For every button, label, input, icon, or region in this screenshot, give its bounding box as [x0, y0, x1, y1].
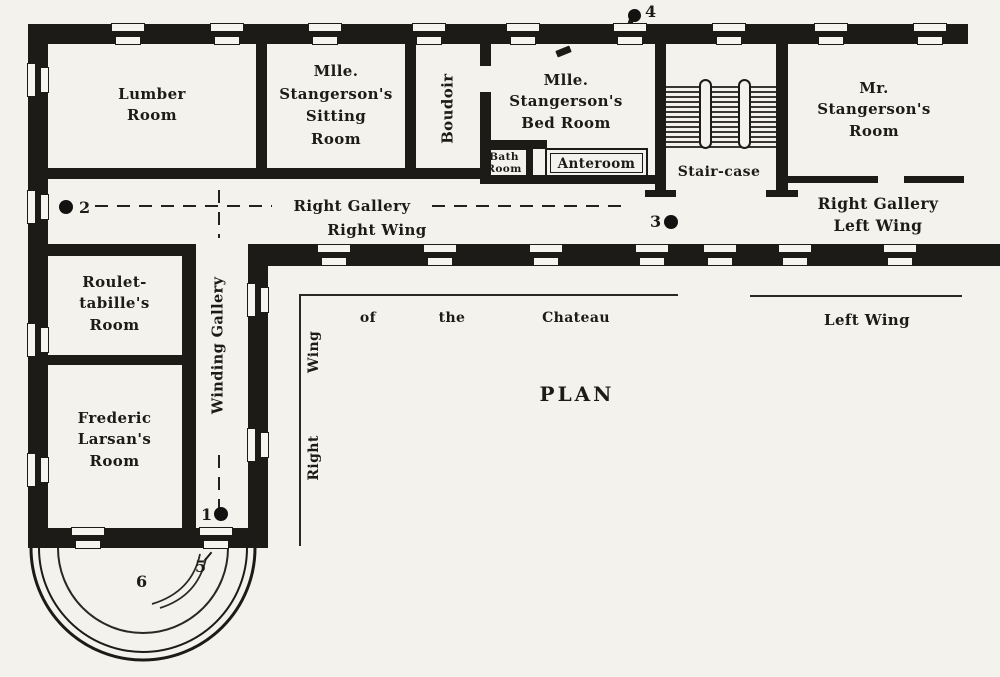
window-pane	[427, 257, 453, 266]
caption-left-wing: Left Wing	[807, 310, 927, 331]
staircase-tread	[666, 136, 776, 138]
window-pane	[887, 257, 913, 266]
window-pane	[917, 36, 943, 45]
room-label-staircase: Stair-case	[664, 163, 774, 183]
window-pane	[533, 257, 559, 266]
window-pane	[308, 23, 342, 32]
room-label-boudoir: Boudoir	[437, 49, 458, 169]
window-pane	[613, 23, 647, 32]
window-pane	[703, 244, 737, 253]
window-pane	[639, 257, 665, 266]
wall-leftrooms-right	[182, 244, 196, 528]
caption-chateau: Chateau	[526, 309, 626, 329]
window-pane	[913, 23, 947, 32]
staircase-tread	[666, 86, 776, 88]
window	[111, 23, 145, 45]
staircase-tread	[666, 101, 776, 103]
room-label-anteroom: Anteroom	[549, 155, 644, 174]
window-pane	[510, 36, 536, 45]
staircase-tread	[666, 131, 776, 133]
window-pane	[247, 428, 256, 462]
window-pane	[712, 23, 746, 32]
room-label-bath: Bath Room	[482, 151, 526, 175]
window	[506, 23, 540, 45]
window	[613, 23, 647, 45]
room-label-bedroom: Mlle. Stangerson's Bed Room	[486, 70, 646, 134]
window-pane	[27, 453, 36, 487]
window-pane	[778, 244, 812, 253]
wall-mrs-bottom-left	[783, 176, 878, 183]
window-pane	[416, 36, 442, 45]
window-pane	[27, 63, 36, 97]
caption-right-vertical: Right	[305, 423, 325, 493]
staircase-tread	[666, 146, 776, 148]
room-label-mr-stangerson: Mr. Stangerson's Room	[784, 78, 964, 142]
window	[635, 244, 669, 266]
caption-the: the	[430, 309, 474, 329]
room-label-lumber: Lumber Room	[62, 84, 242, 127]
marker-3-dot	[664, 215, 678, 229]
window	[71, 527, 105, 549]
room-label-larsan: Frederic Larsan's Room	[52, 408, 177, 472]
window-pane	[75, 540, 101, 549]
window	[913, 23, 947, 45]
window-pane	[214, 36, 240, 45]
window-pane	[782, 257, 808, 266]
staircase-tread	[666, 116, 776, 118]
window-pane	[260, 287, 269, 313]
staircase-rail-left	[699, 79, 712, 149]
marker-3: 3	[650, 212, 661, 231]
marker-4-dot	[628, 9, 641, 22]
marker-1: 1	[201, 505, 212, 524]
marker-2-dot	[59, 200, 73, 214]
window	[247, 283, 269, 317]
window-pane	[412, 23, 446, 32]
gallery-label-right-wing: Right Wing	[307, 220, 447, 241]
caption-of: of	[348, 309, 388, 329]
marker-1-dot	[214, 507, 228, 521]
window-pane	[321, 257, 347, 266]
window	[412, 23, 446, 45]
window	[529, 244, 563, 266]
right-gallery-dash-left	[95, 205, 275, 207]
window-pane	[210, 23, 244, 32]
window	[210, 23, 244, 45]
staircase-tread	[666, 121, 776, 123]
wall-roulettabille-larsan	[48, 355, 190, 365]
staircase-tread	[666, 96, 776, 98]
marker-4: 4	[645, 2, 656, 21]
staircase-tread	[666, 126, 776, 128]
window-pane	[423, 244, 457, 253]
window-pane	[883, 244, 917, 253]
window-pane	[707, 257, 733, 266]
window-pane	[312, 36, 338, 45]
window	[317, 244, 351, 266]
room-label-sitting: Mlle. Stangerson's Sitting Room	[266, 60, 406, 150]
marker-6: 6	[136, 572, 147, 591]
window-pane	[199, 527, 233, 536]
window	[199, 527, 233, 549]
window-pane	[818, 36, 844, 45]
window	[247, 428, 269, 462]
window-pane	[40, 327, 49, 353]
window-pane	[40, 194, 49, 220]
window	[27, 323, 49, 357]
window	[27, 453, 49, 487]
staircase-tread	[666, 111, 776, 113]
window-pane	[40, 457, 49, 483]
wall-rooms-bottom	[48, 168, 480, 179]
window-pane	[814, 23, 848, 32]
wall-mrs-bottom-right	[904, 176, 964, 183]
window	[27, 63, 49, 97]
courtyard-line-top-left	[299, 294, 678, 296]
window-pane	[260, 432, 269, 458]
window-pane	[71, 527, 105, 536]
courtyard-line-vertical	[299, 294, 301, 546]
window-pane	[27, 323, 36, 357]
room-label-roulettabille: Roulet- tabille's Room	[52, 272, 177, 336]
floor-plan-diagram: Lumber Room Mlle. Stangerson's Sitting R…	[0, 0, 1000, 677]
caption-wing-vertical: Wing	[305, 320, 325, 384]
wall-bed-staircase-foot	[645, 190, 676, 197]
window-pane	[716, 36, 742, 45]
wall-roulettabille-top	[48, 244, 196, 256]
staircase-rail-right	[738, 79, 751, 149]
window	[27, 190, 49, 224]
staircase-tread	[666, 106, 776, 108]
window	[703, 244, 737, 266]
courtyard-line-top-right	[750, 295, 962, 297]
window-pane	[635, 244, 669, 253]
window	[778, 244, 812, 266]
tower-arcs	[20, 540, 270, 675]
gallery-label-right-gallery: Right Gallery	[272, 196, 432, 217]
gallery-label-right-gallery-left-wing: Right Gallery Left Wing	[788, 193, 968, 237]
gallery-label-winding-gallery: Winding Gallery	[209, 230, 230, 460]
window-pane	[111, 23, 145, 32]
window-pane	[40, 67, 49, 93]
window-pane	[115, 36, 141, 45]
window-pane	[617, 36, 643, 45]
window	[423, 244, 457, 266]
window-pane	[529, 244, 563, 253]
marker-2: 2	[79, 198, 90, 217]
staircase-tread	[666, 141, 776, 143]
caption-plan: PLAN	[517, 380, 637, 408]
window-pane	[506, 23, 540, 32]
window-pane	[203, 540, 229, 549]
staircase-tread	[666, 91, 776, 93]
window-pane	[317, 244, 351, 253]
wall-boudoir-bed-upper	[480, 44, 491, 66]
window	[814, 23, 848, 45]
window	[712, 23, 746, 45]
right-gallery-dash-right	[432, 205, 630, 207]
bedroom-mark	[555, 45, 572, 57]
wall-sitting-boudoir	[405, 44, 416, 168]
winding-gallery-dash-bottom	[218, 455, 220, 509]
window-pane	[247, 283, 256, 317]
window	[308, 23, 342, 45]
window	[883, 244, 917, 266]
wall-bed-bottom	[491, 140, 547, 149]
window-pane	[27, 190, 36, 224]
